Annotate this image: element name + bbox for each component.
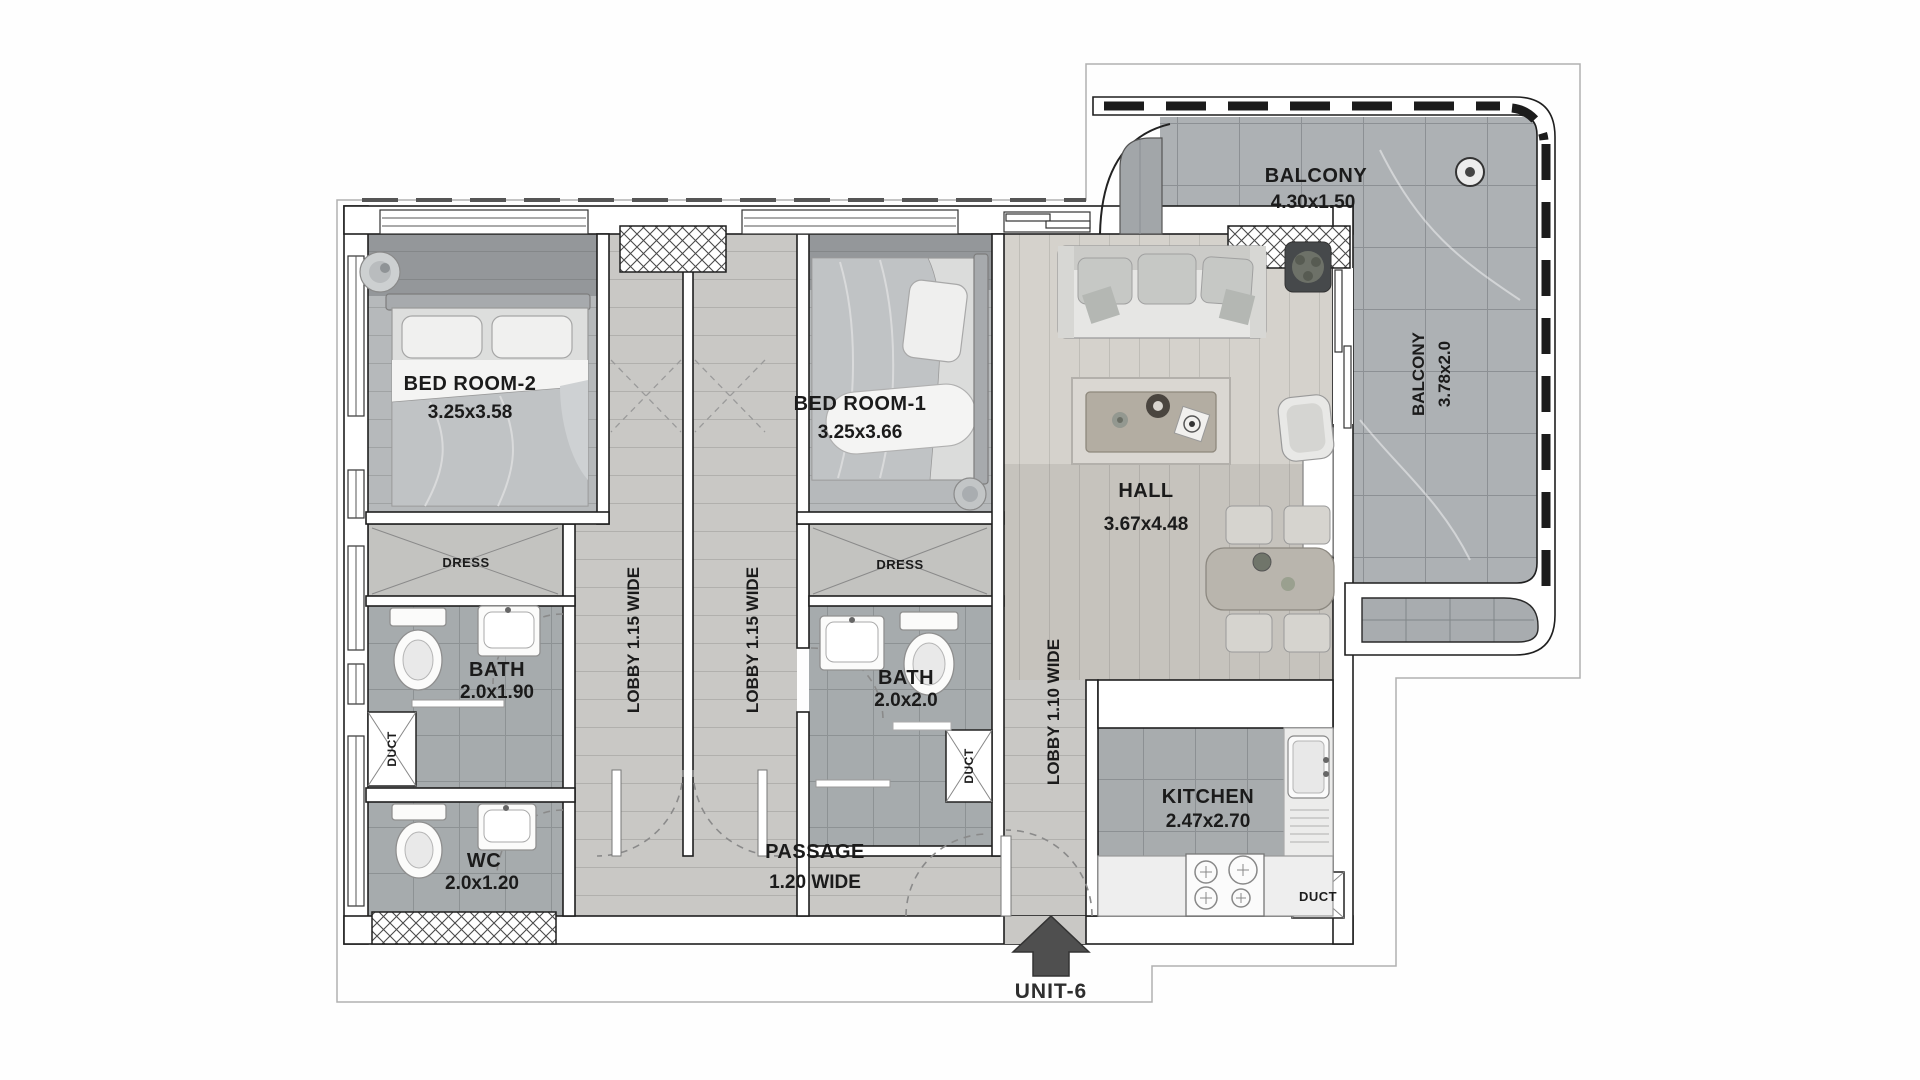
kitchen-dims-label: 2.47x2.70 [1166, 811, 1251, 832]
dress1-label: DRESS [876, 557, 923, 572]
arch-pillar [1120, 138, 1162, 234]
door-leaf-entrance [1001, 836, 1011, 916]
floor-plan: BED ROOM-2 3.25x3.58 BED ROOM-1 3.25x3.6… [0, 0, 1920, 1080]
kitchen-counter-top [1098, 680, 1333, 728]
balcony-top-dims-label: 4.30x1.50 [1271, 192, 1356, 213]
bedroom1-window [742, 210, 958, 234]
toilet-tank-bath2 [390, 608, 446, 626]
shaft-hatch-bedrooms [620, 226, 726, 272]
door-leaf-lobby-a [612, 770, 621, 856]
lobby-entry-label: LOBBY 1.10 WIDE [1044, 639, 1063, 785]
wall-bedroom2-right [597, 234, 609, 524]
balcony-top-name-label: BALCONY [1265, 165, 1368, 187]
coffee-table-set [1072, 378, 1230, 464]
hall-dims-label: 3.67x4.48 [1104, 514, 1189, 535]
vent-hatch-wc [372, 912, 556, 944]
lobby-a-label: LOBBY 1.15 WIDE [624, 567, 643, 713]
wall-dress1-bottom [809, 596, 1004, 606]
bath1-name-label: BATH [878, 667, 934, 689]
bedroom1-name-label: BED ROOM-1 [794, 393, 927, 415]
kitchen-name-label: KITCHEN [1162, 786, 1254, 808]
armchair-icon [1277, 393, 1335, 462]
table-plant-small [1281, 577, 1295, 591]
toilet-tank-bath1 [900, 612, 958, 630]
dining-chair [1284, 506, 1330, 544]
sofa-icon [1058, 246, 1266, 338]
passage-name-label: PASSAGE [765, 841, 865, 863]
balcony-right-dims-label: 3.78x2.0 [1435, 341, 1454, 407]
wall-leftblock-right [563, 524, 575, 916]
wall-bedroom2-bottom [366, 512, 609, 524]
stove-icon [1186, 854, 1264, 916]
wall-kitchen-left [1086, 680, 1098, 916]
lobby-b-planks [693, 234, 797, 856]
bath2-dims-label: 2.0x1.90 [460, 682, 534, 703]
duct-wc-label: DUCT [385, 731, 399, 766]
table-plant [1253, 553, 1271, 571]
duct-bath1-label: DUCT [962, 748, 976, 783]
bath2-name-label: BATH [469, 659, 525, 681]
wc-name-label: WC [467, 850, 501, 872]
wall-bedroom1-bottom [797, 512, 1004, 524]
balcony-door-panel-1 [1335, 270, 1342, 352]
bedroom2-name-label: BED ROOM-2 [404, 373, 537, 395]
bedroom2-window [380, 210, 588, 234]
dining-chair [1226, 506, 1272, 544]
bedroom1-dims-label: 3.25x3.66 [818, 422, 903, 443]
left-wall-windows [348, 256, 364, 906]
shelf-bath1 [893, 722, 951, 730]
lobby-b-label: LOBBY 1.15 WIDE [743, 567, 762, 713]
hall-slider-panel-2 [1046, 221, 1090, 228]
wall-bedroom1-left [797, 234, 809, 524]
balcony-right-name-label: BALCONY [1409, 331, 1428, 416]
bed-1-icon [812, 254, 988, 510]
bath1-dims-label: 2.0x2.0 [874, 690, 937, 711]
dining-chair [1284, 614, 1330, 652]
plant-side-table [1285, 242, 1331, 292]
toilet-tank-wc [392, 804, 446, 820]
wc-dims-label: 2.0x1.20 [445, 873, 519, 894]
hall-slider-panel-1 [1006, 214, 1050, 221]
wall-hall-left [992, 234, 1004, 856]
towel-bar-bath1 [816, 780, 890, 787]
wall-dress2-bottom [366, 596, 575, 606]
duct-kitchen-label: DUCT [1299, 889, 1337, 904]
bedroom2-shadow [368, 234, 597, 296]
dining-chair [1226, 614, 1272, 652]
unit-label: UNIT-6 [1015, 980, 1088, 1003]
hall-name-label: HALL [1118, 480, 1173, 502]
dress2-label: DRESS [442, 555, 489, 570]
floor-plan-page: BED ROOM-2 3.25x3.58 BED ROOM-1 3.25x3.6… [0, 0, 1920, 1080]
wall-bath1-left-upper [797, 524, 809, 648]
balcony-door-panel-2 [1344, 346, 1351, 428]
passage-dims-label: 1.20 WIDE [769, 872, 861, 893]
bedroom2-dims-label: 3.25x3.58 [428, 402, 513, 423]
wall-lobby-divider [683, 234, 693, 856]
wall-bath2-bottom [366, 788, 575, 802]
